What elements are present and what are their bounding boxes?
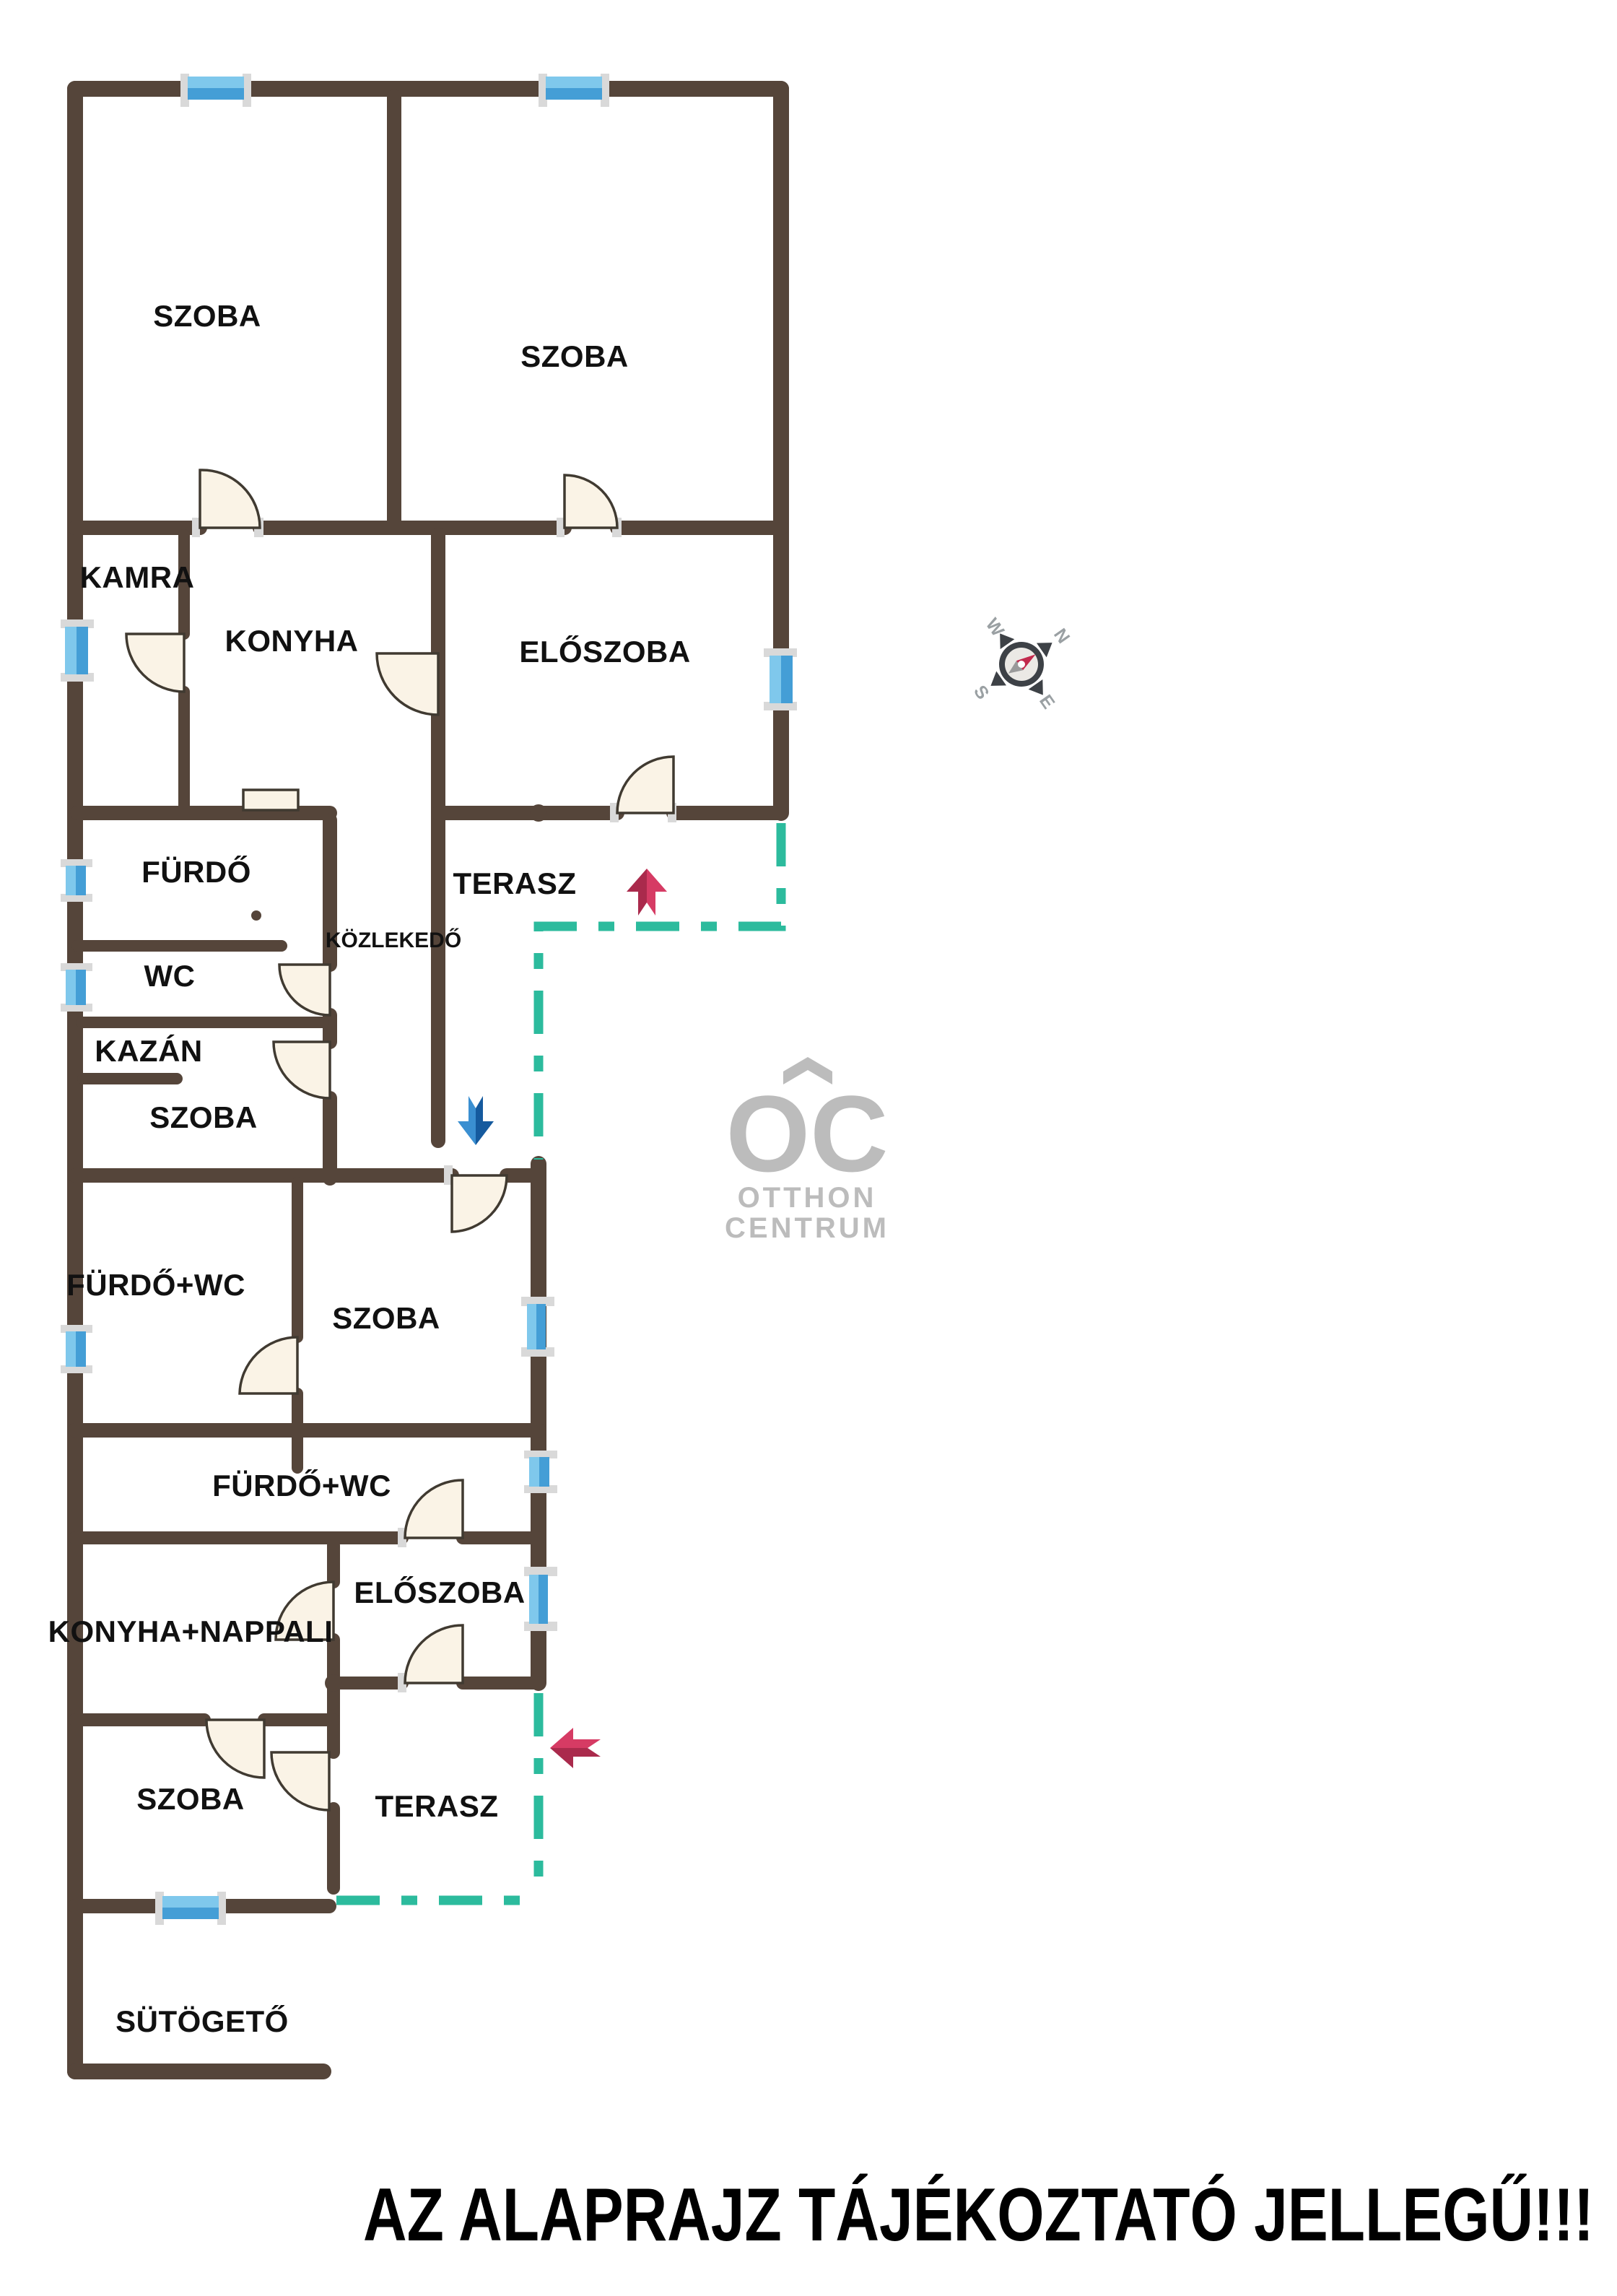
door-arc-szoba-kazan xyxy=(274,1042,330,1098)
window-szoba-top-left xyxy=(188,77,244,88)
compass-label-e: E xyxy=(1035,691,1059,713)
door-arc-furdowc-middle xyxy=(240,1337,297,1393)
room-label-szoba-top-left: SZOBA xyxy=(153,299,261,333)
room-label-konyha-nappali: KONYHA+NAPPALI xyxy=(48,1614,334,1648)
room-label-szoba-top-right: SZOBA xyxy=(520,339,629,373)
window-wc xyxy=(66,970,76,1005)
arrow-down-icon xyxy=(458,1096,494,1145)
entrance-arrow-up-icon xyxy=(627,869,667,916)
door-arc-szoba-middle xyxy=(452,1175,507,1232)
window-furdo xyxy=(66,866,76,895)
arrows xyxy=(458,869,667,1768)
room-label-furdo-wc-middle: FÜRDŐ+WC xyxy=(66,1268,245,1302)
door-leaf-kozlekedo xyxy=(243,790,298,810)
room-label-konyha: KONYHA xyxy=(225,624,358,658)
room-label-terasz-lower: TERASZ xyxy=(375,1789,499,1823)
window-eloszoba-upper xyxy=(770,656,781,703)
room-label-sutogeto: SÜTÖGETŐ xyxy=(115,2004,289,2038)
room-label-szoba-bottom: SZOBA xyxy=(136,1782,245,1816)
floorplan-page: { "disclaimer": { "text": "AZ ALAPRAJZ T… xyxy=(0,0,1617,2296)
window-furdowc-middle xyxy=(66,1331,76,1367)
room-label-szoba-middle: SZOBA xyxy=(332,1301,440,1335)
room-label-terasz-upper: TERASZ xyxy=(453,866,577,900)
door-arc-konyha xyxy=(377,653,438,715)
room-label-wc: WC xyxy=(144,959,196,993)
window-szoba-middle xyxy=(527,1304,536,1349)
wall-dot xyxy=(530,804,547,822)
room-label-eloszoba-lower: ELŐSZOBA xyxy=(354,1575,525,1609)
compass-label-s: S xyxy=(969,682,993,703)
door-arc-eloszoba2-terasz xyxy=(405,1625,463,1683)
window-eloszoba-lower xyxy=(529,1575,539,1624)
door-arc-kamra xyxy=(126,634,184,692)
window-szoba-bottom xyxy=(162,1896,219,1908)
room-label-furdo: FÜRDŐ xyxy=(141,855,251,889)
floorplan-canvas: N S W E OC OTTHON CENTRUM SZOBA SZOBA KA… xyxy=(0,0,1617,2296)
disclaimer-text: AZ ALAPRAJZ TÁJÉKOZTATÓ JELLEGŰ!!! xyxy=(363,2173,1594,2257)
door-arc-szoba-top-left xyxy=(200,470,260,528)
room-label-eloszoba-upper: ELŐSZOBA xyxy=(519,635,690,669)
wall-dot xyxy=(325,1674,342,1692)
window-szoba-top-right xyxy=(546,77,602,88)
door-arc-wc xyxy=(279,965,330,1015)
room-label-kozlekedo: KÖZLEKEDŐ xyxy=(326,928,461,952)
room-label-szoba-kazan: SZOBA xyxy=(149,1100,258,1134)
room-label-kazan: KAZÁN xyxy=(95,1034,202,1068)
window-kamra xyxy=(65,627,77,674)
door-arc-furdowc-lower xyxy=(405,1480,463,1538)
walls xyxy=(75,89,781,2071)
compass-label-n: N xyxy=(1050,625,1073,648)
door-arc-szoba-top-right xyxy=(565,475,617,528)
entrance-arrow-left-icon xyxy=(550,1728,601,1768)
terrace-boundaries xyxy=(336,823,781,1900)
door-arc-terasz-szoba xyxy=(271,1752,329,1810)
window-furdowc-lower xyxy=(529,1457,539,1487)
wall-dot xyxy=(251,910,261,921)
watermark-oc: OC xyxy=(726,1073,889,1194)
watermark-line2: CENTRUM xyxy=(725,1212,889,1244)
door-arc-szoba-bottom xyxy=(206,1720,264,1778)
watermark-line1: OTTHON xyxy=(738,1182,877,1214)
room-label-furdo-wc-lower: FÜRDŐ+WC xyxy=(212,1469,391,1503)
door-arc-entrance-upper xyxy=(617,757,674,813)
compass-icon: N S W E xyxy=(942,586,1099,741)
room-label-kamra: KAMRA xyxy=(80,560,195,594)
watermark-logo: OC OTTHON CENTRUM xyxy=(725,1057,889,1244)
